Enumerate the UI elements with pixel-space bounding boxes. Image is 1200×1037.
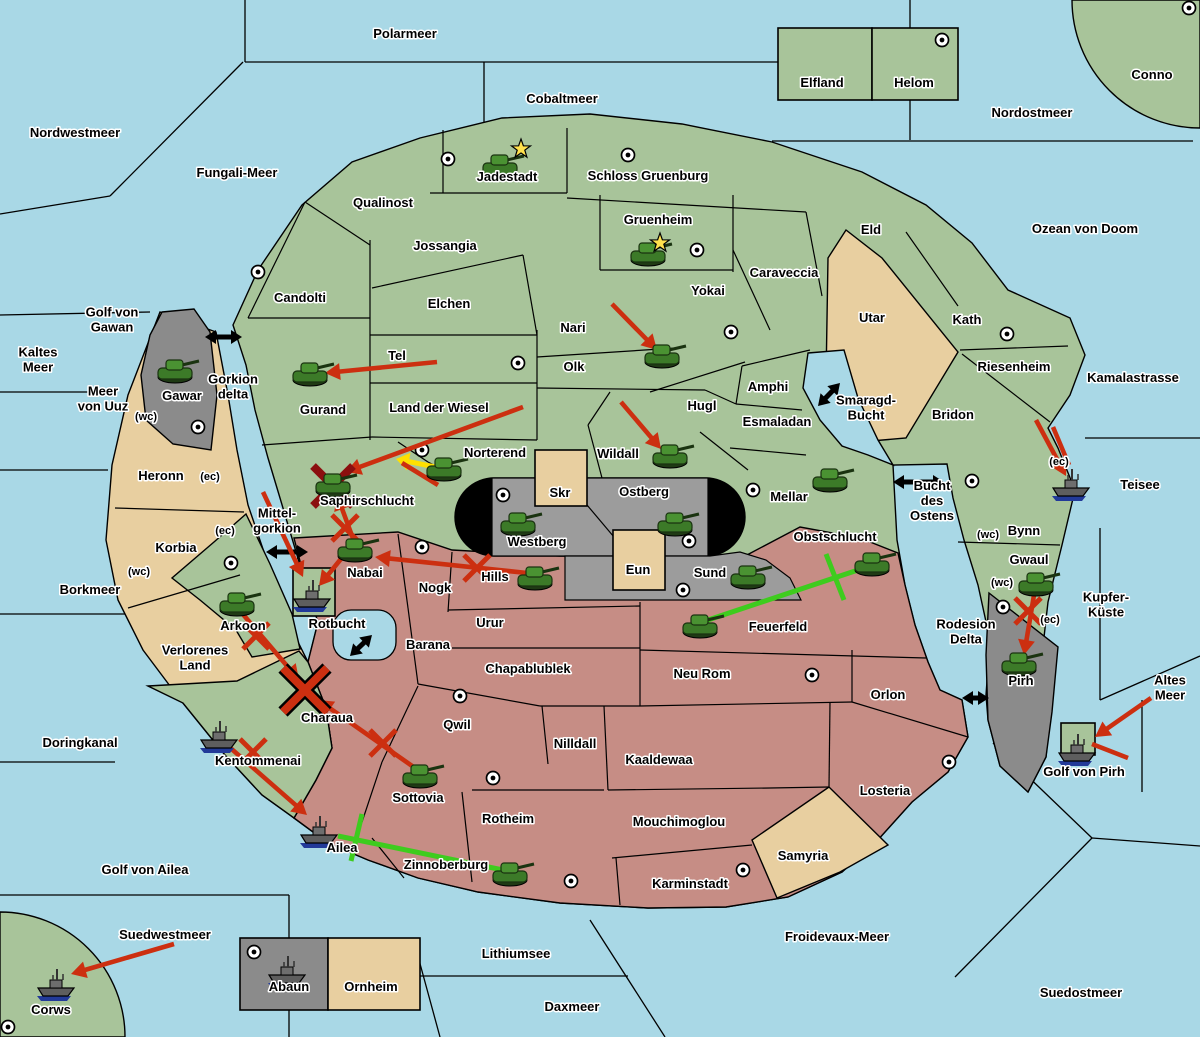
region-label-landderwiesel: Land der Wiesel xyxy=(389,400,489,415)
label-text: Elchen xyxy=(428,296,471,311)
label-text: Norterend xyxy=(464,445,526,460)
tank-icon xyxy=(739,566,756,576)
label-text: Bucht xyxy=(914,478,952,493)
label-text: Land xyxy=(179,658,210,673)
sea-label-kupfer: Kupfer-Küste xyxy=(1083,590,1129,620)
sea-label-golfvonailea: Golf von Ailea xyxy=(102,862,190,877)
tank-icon xyxy=(1010,653,1027,663)
label-text: Hugl xyxy=(688,398,717,413)
label-text: Olk xyxy=(564,359,586,374)
region-label-schlossgruenburg: Schloss Gruenburg xyxy=(588,168,709,183)
region-label-nilldall: Nilldall xyxy=(554,736,597,751)
label-text: Fungali-Meer xyxy=(197,165,278,180)
label-text: Obstschlucht xyxy=(793,529,877,544)
label-text: Korbia xyxy=(155,540,197,555)
coast-marker: (ec) xyxy=(1049,456,1069,468)
region-label-gawar: Gawar xyxy=(162,388,202,403)
sea-label-polarmeer: Polarmeer xyxy=(373,26,437,41)
supply-center-dot xyxy=(695,248,700,253)
supply-center-dot xyxy=(420,448,425,453)
region-label-urur: Urur xyxy=(476,615,503,630)
label-text: Jossangia xyxy=(413,238,477,253)
label-text: Ostens xyxy=(910,508,954,523)
label-text: Samyria xyxy=(778,848,829,863)
label-text: Golf von xyxy=(86,305,139,320)
label-text: Zinnoberburg xyxy=(404,857,489,872)
label-text: Kamalastrasse xyxy=(1087,370,1179,385)
sea-label-fungalimeer: Fungali-Meer xyxy=(197,165,278,180)
label-text: Kaltes xyxy=(18,345,57,360)
tank-icon xyxy=(666,513,683,523)
supply-center-dot xyxy=(947,760,952,765)
ship-icon xyxy=(1053,488,1089,496)
label-text: Teisee xyxy=(1120,477,1160,492)
sea-label-kamalastrasse: Kamalastrasse xyxy=(1087,370,1179,385)
sea-label-suedwestmeer: Suedwestmeer xyxy=(119,927,211,942)
label-text: Corws xyxy=(31,1002,71,1017)
sea-label-suedostmeer: Suedostmeer xyxy=(1040,985,1122,1000)
label-text: Küste xyxy=(1088,605,1124,620)
region-label-kentommenai: Kentommenai xyxy=(215,753,301,768)
label-text: Losteria xyxy=(860,783,911,798)
tank-icon xyxy=(821,469,838,479)
label-text: Borkmeer xyxy=(60,582,121,597)
region-label-olk: Olk xyxy=(564,359,586,374)
coast-marker: (wc) xyxy=(128,566,150,578)
sea-label-doringkanal: Doringkanal xyxy=(42,735,117,750)
label-text: Eun xyxy=(626,562,651,577)
label-text: Urur xyxy=(476,615,503,630)
label-text: Caraveccia xyxy=(750,265,819,280)
label-text: Daxmeer xyxy=(545,999,600,1014)
coast-marker: (ec) xyxy=(215,525,235,537)
region-label-abaun: Abaun xyxy=(269,979,310,994)
sea-label-rotbucht: Rotbucht xyxy=(308,616,366,631)
label-text: Orlon xyxy=(871,687,906,702)
label-text: Utar xyxy=(859,310,885,325)
tank-icon xyxy=(1027,573,1044,583)
tank-icon xyxy=(653,345,670,355)
tank-icon xyxy=(411,765,428,775)
label-text: Feuerfeld xyxy=(749,619,808,634)
label-text: Gawan xyxy=(91,320,134,335)
sea-label-borkmeer: Borkmeer xyxy=(60,582,121,597)
supply-center-dot xyxy=(252,950,257,955)
region-label-pirh: Pirh xyxy=(1008,673,1033,688)
label-text: Nordostmeer xyxy=(992,105,1073,120)
region-label-conno: Conno xyxy=(1131,67,1172,82)
region-label-heronn: Heronn xyxy=(138,468,184,483)
label-text: Bynn xyxy=(1008,523,1041,538)
label-text: Yokai xyxy=(691,283,725,298)
region-box-eun xyxy=(613,530,665,590)
coast-marker: (wc) xyxy=(977,529,999,541)
supply-center-dot xyxy=(1187,6,1192,11)
sea-label-kaltes: KaltesMeer xyxy=(18,345,57,375)
region-label-ailea: Ailea xyxy=(326,840,358,855)
coast-marker: (ec) xyxy=(200,471,220,483)
label-text: Skr xyxy=(550,485,571,500)
label-text: Kupfer- xyxy=(1083,590,1129,605)
label-text: Meer xyxy=(88,384,118,399)
label-text: (ec) xyxy=(200,471,220,483)
supply-center-dot xyxy=(446,157,451,162)
region-label-westberg: Westberg xyxy=(508,534,567,549)
sea-label-cobaltmeer: Cobaltmeer xyxy=(526,91,598,106)
ship-icon xyxy=(1059,753,1095,761)
label-text: Conno xyxy=(1131,67,1172,82)
label-text: von Uuz xyxy=(78,399,129,414)
region-label-helom: Helom xyxy=(894,75,934,90)
label-text: Gawar xyxy=(162,388,202,403)
label-text: Suedwestmeer xyxy=(119,927,211,942)
supply-center-dot xyxy=(751,488,756,493)
region-label-eld: Eld xyxy=(861,222,881,237)
label-text: Verlorenes xyxy=(162,643,229,658)
region-label-sund: Sund xyxy=(694,565,727,580)
region-label-karminstadt: Karminstadt xyxy=(652,876,729,891)
coast-marker: (wc) xyxy=(135,411,157,423)
region-label-elchen: Elchen xyxy=(428,296,471,311)
label-text: Froidevaux-Meer xyxy=(785,929,889,944)
region-label-saphirschlucht: Saphirschlucht xyxy=(320,493,415,508)
label-text: Lithiumsee xyxy=(482,946,551,961)
label-text: Doringkanal xyxy=(42,735,117,750)
region-label-wildall: Wildall xyxy=(597,446,639,461)
region-label-orlon: Orlon xyxy=(871,687,906,702)
ship-icon xyxy=(201,740,237,748)
region-label-eun: Eun xyxy=(626,562,651,577)
label-text: (ec) xyxy=(1040,614,1060,626)
label-text: des xyxy=(921,493,943,508)
sea-label-nordostmeer: Nordostmeer xyxy=(992,105,1073,120)
ship-icon xyxy=(281,967,293,975)
label-text: Polarmeer xyxy=(373,26,437,41)
supply-center-dot xyxy=(940,38,945,43)
sea-label-altes: AltesMeer xyxy=(1154,673,1186,703)
label-text: Qwil xyxy=(443,717,470,732)
map-container: PolarmeerCobaltmeerNordostmeerNordwestme… xyxy=(0,0,1200,1037)
supply-center-dot xyxy=(1001,605,1006,610)
supply-center-dot xyxy=(458,694,463,699)
region-label-ornheim: Ornheim xyxy=(344,979,397,994)
tank-icon xyxy=(863,553,880,563)
label-text: Nogk xyxy=(419,580,452,595)
supply-center-dot xyxy=(420,545,425,550)
coast-marker: (ec) xyxy=(1040,614,1060,626)
ship-icon xyxy=(294,599,330,607)
label-text: Helom xyxy=(894,75,934,90)
tank-icon xyxy=(228,593,245,603)
region-box-ornheim xyxy=(328,938,420,1010)
region-label-bridon: Bridon xyxy=(932,407,974,422)
ship-icon xyxy=(1065,480,1077,488)
sea-label-golfvon: Golf vonGawan xyxy=(86,305,139,335)
supply-center-dot xyxy=(6,1025,11,1030)
label-text: Chapablublek xyxy=(485,661,571,676)
label-text: Amphi xyxy=(748,379,788,394)
tank-icon xyxy=(509,513,526,523)
tank-icon xyxy=(346,539,363,549)
region-label-samyria: Samyria xyxy=(778,848,829,863)
label-text: Gurand xyxy=(300,402,346,417)
supply-center-dot xyxy=(681,588,686,593)
region-label-norterend: Norterend xyxy=(464,445,526,460)
supply-center-dot xyxy=(256,270,261,275)
region-label-qwil: Qwil xyxy=(443,717,470,732)
region-label-obstschlucht: Obstschlucht xyxy=(793,529,877,544)
region-label-gwaul: Gwaul xyxy=(1009,552,1048,567)
label-text: (ec) xyxy=(215,525,235,537)
tank-icon xyxy=(526,567,543,577)
supply-center-dot xyxy=(516,361,521,366)
supply-center-dot xyxy=(196,425,201,430)
label-text: Meer xyxy=(23,360,53,375)
label-text: Ostberg xyxy=(619,484,669,499)
label-text: Riesenheim xyxy=(978,359,1051,374)
region-label-neurom: Neu Rom xyxy=(673,666,730,681)
tank-icon xyxy=(301,363,318,373)
label-text: Esmaladan xyxy=(743,414,812,429)
label-text: Rotheim xyxy=(482,811,534,826)
label-text: Arkoon xyxy=(220,618,266,633)
label-text: Cobaltmeer xyxy=(526,91,598,106)
label-text: Saphirschlucht xyxy=(320,493,415,508)
label-text: Sund xyxy=(694,565,727,580)
region-label-gruenheim: Gruenheim xyxy=(624,212,693,227)
label-text: Neu Rom xyxy=(673,666,730,681)
label-text: Eld xyxy=(861,222,881,237)
label-text: Barana xyxy=(406,637,451,652)
region-label-bynn: Bynn xyxy=(1008,523,1041,538)
label-text: Elfland xyxy=(800,75,843,90)
tank-icon xyxy=(324,474,341,484)
region-label-losteria: Losteria xyxy=(860,783,911,798)
label-text: Kath xyxy=(953,312,982,327)
region-label-zinnoberburg: Zinnoberburg xyxy=(404,857,489,872)
label-text: Mellar xyxy=(770,489,808,504)
label-text: Rodesion xyxy=(936,617,995,632)
region-label-yokai: Yokai xyxy=(691,283,725,298)
label-text: Gorkion xyxy=(208,372,258,387)
region-label-sottovia: Sottovia xyxy=(392,790,444,805)
ship-icon xyxy=(1052,496,1086,501)
label-text: Nari xyxy=(560,320,585,335)
region-label-riesenheim: Riesenheim xyxy=(978,359,1051,374)
label-text: Pirh xyxy=(1008,673,1033,688)
region-label-nabai: Nabai xyxy=(347,565,382,580)
supply-center-dot xyxy=(687,539,692,544)
supply-center-dot xyxy=(569,879,574,884)
sea-label-golfvonpirh: Golf von Pirh xyxy=(1043,764,1125,779)
region-label-amphi: Amphi xyxy=(748,379,788,394)
label-text: Gwaul xyxy=(1009,552,1048,567)
label-text: Golf von Pirh xyxy=(1043,764,1125,779)
label-text: Bucht xyxy=(848,408,886,423)
ship-icon xyxy=(213,732,225,740)
sea-label-froidevauxmeer: Froidevaux-Meer xyxy=(785,929,889,944)
region-label-kaaldewaa: Kaaldewaa xyxy=(625,752,693,767)
label-text: Land der Wiesel xyxy=(389,400,489,415)
region-label-corws: Corws xyxy=(31,1002,71,1017)
region-label-nogk: Nogk xyxy=(419,580,452,595)
label-text: Golf von Ailea xyxy=(102,862,190,877)
region-label-mellar: Mellar xyxy=(770,489,808,504)
ship-icon xyxy=(50,980,62,988)
label-text: Schloss Gruenburg xyxy=(588,168,709,183)
region-label-mouchimoglou: Mouchimoglou xyxy=(633,814,725,829)
label-text: Hills xyxy=(481,569,508,584)
tank-icon xyxy=(491,155,508,165)
label-text: gorkion xyxy=(253,521,301,536)
label-text: Gruenheim xyxy=(624,212,693,227)
supply-center-dot xyxy=(810,673,815,678)
label-text: Ozean von Doom xyxy=(1032,221,1138,236)
region-label-ostberg: Ostberg xyxy=(619,484,669,499)
region-label-kath: Kath xyxy=(953,312,982,327)
region-label-skr: Skr xyxy=(550,485,571,500)
tank-icon xyxy=(691,615,708,625)
label-text: (wc) xyxy=(135,411,157,423)
ship-icon xyxy=(1071,745,1083,753)
label-text: (wc) xyxy=(991,577,1013,589)
supply-center-dot xyxy=(1005,332,1010,337)
region-label-rotheim: Rotheim xyxy=(482,811,534,826)
tank-icon xyxy=(435,458,452,468)
tank-icon xyxy=(166,360,183,370)
supply-center-dot xyxy=(491,776,496,781)
label-text: Candolti xyxy=(274,290,326,305)
label-text: Altes xyxy=(1154,673,1186,688)
label-text: Wildall xyxy=(597,446,639,461)
region-label-nari: Nari xyxy=(560,320,585,335)
label-text: delta xyxy=(218,387,249,402)
region-label-elfland: Elfland xyxy=(800,75,843,90)
sea-label-ozeanvondoom: Ozean von Doom xyxy=(1032,221,1138,236)
region-label-esmaladan: Esmaladan xyxy=(743,414,812,429)
region-label-caraveccia: Caraveccia xyxy=(750,265,819,280)
label-text: Sottovia xyxy=(392,790,444,805)
label-text: Tel xyxy=(388,348,406,363)
label-text: Westberg xyxy=(508,534,567,549)
supply-center-dot xyxy=(970,479,975,484)
ship-icon xyxy=(38,988,74,996)
label-text: Delta xyxy=(950,632,983,647)
label-text: Meer xyxy=(1155,688,1185,703)
label-text: Abaun xyxy=(269,979,310,994)
sea-label-nordwestmeer: Nordwestmeer xyxy=(30,125,120,140)
sea-label-teisee: Teisee xyxy=(1120,477,1160,492)
supply-center-dot xyxy=(729,330,734,335)
label-text: Qualinost xyxy=(353,195,414,210)
label-text: Nordwestmeer xyxy=(30,125,120,140)
region-label-tel: Tel xyxy=(388,348,406,363)
label-text: Nabai xyxy=(347,565,382,580)
supply-center-dot xyxy=(741,868,746,873)
label-text: Ornheim xyxy=(344,979,397,994)
label-text: Kentommenai xyxy=(215,753,301,768)
region-label-feuerfeld: Feuerfeld xyxy=(749,619,808,634)
supply-center-dot xyxy=(501,493,506,498)
ship-icon xyxy=(293,607,327,612)
region-label-hills: Hills xyxy=(481,569,508,584)
sea-label-daxmeer: Daxmeer xyxy=(545,999,600,1014)
sea-label-lithiumsee: Lithiumsee xyxy=(482,946,551,961)
ship-icon xyxy=(37,996,71,1001)
label-text: Heronn xyxy=(138,468,184,483)
label-text: Ailea xyxy=(326,840,358,855)
region-label-korbia: Korbia xyxy=(155,540,197,555)
label-text: Kaaldewaa xyxy=(625,752,693,767)
label-text: Mittel- xyxy=(258,506,296,521)
region-label-candolti: Candolti xyxy=(274,290,326,305)
region-label-utar: Utar xyxy=(859,310,885,325)
tank-icon xyxy=(661,445,678,455)
tank-icon xyxy=(501,863,518,873)
label-text: Jadestadt xyxy=(477,169,538,184)
label-text: Smaragd- xyxy=(836,393,896,408)
supply-center-dot xyxy=(229,561,234,566)
ship-icon xyxy=(306,591,318,599)
label-text: Nilldall xyxy=(554,736,597,751)
region-label-gurand: Gurand xyxy=(300,402,346,417)
region-label-jadestadt: Jadestadt xyxy=(477,169,538,184)
region-label-qualinost: Qualinost xyxy=(353,195,414,210)
label-text: (ec) xyxy=(1049,456,1069,468)
region-label-jossangia: Jossangia xyxy=(413,238,477,253)
label-text: Mouchimoglou xyxy=(633,814,725,829)
region-label-barana: Barana xyxy=(406,637,451,652)
coast-marker: (wc) xyxy=(991,577,1013,589)
region-label-charaua: Charaua xyxy=(301,710,354,725)
game-map[interactable]: PolarmeerCobaltmeerNordostmeerNordwestme… xyxy=(0,0,1200,1037)
ship-icon xyxy=(313,827,325,835)
region-label-hugl: Hugl xyxy=(688,398,717,413)
label-text: Suedostmeer xyxy=(1040,985,1122,1000)
region-label-chapablublek: Chapablublek xyxy=(485,661,571,676)
label-text: (wc) xyxy=(977,529,999,541)
label-text: Karminstadt xyxy=(652,876,729,891)
label-text: (wc) xyxy=(128,566,150,578)
region-label-arkoon: Arkoon xyxy=(220,618,266,633)
label-text: Bridon xyxy=(932,407,974,422)
sea-label-mittel: Mittel-gorkion xyxy=(253,506,301,536)
label-text: Rotbucht xyxy=(308,616,366,631)
label-text: Charaua xyxy=(301,710,354,725)
supply-center-dot xyxy=(626,153,631,158)
